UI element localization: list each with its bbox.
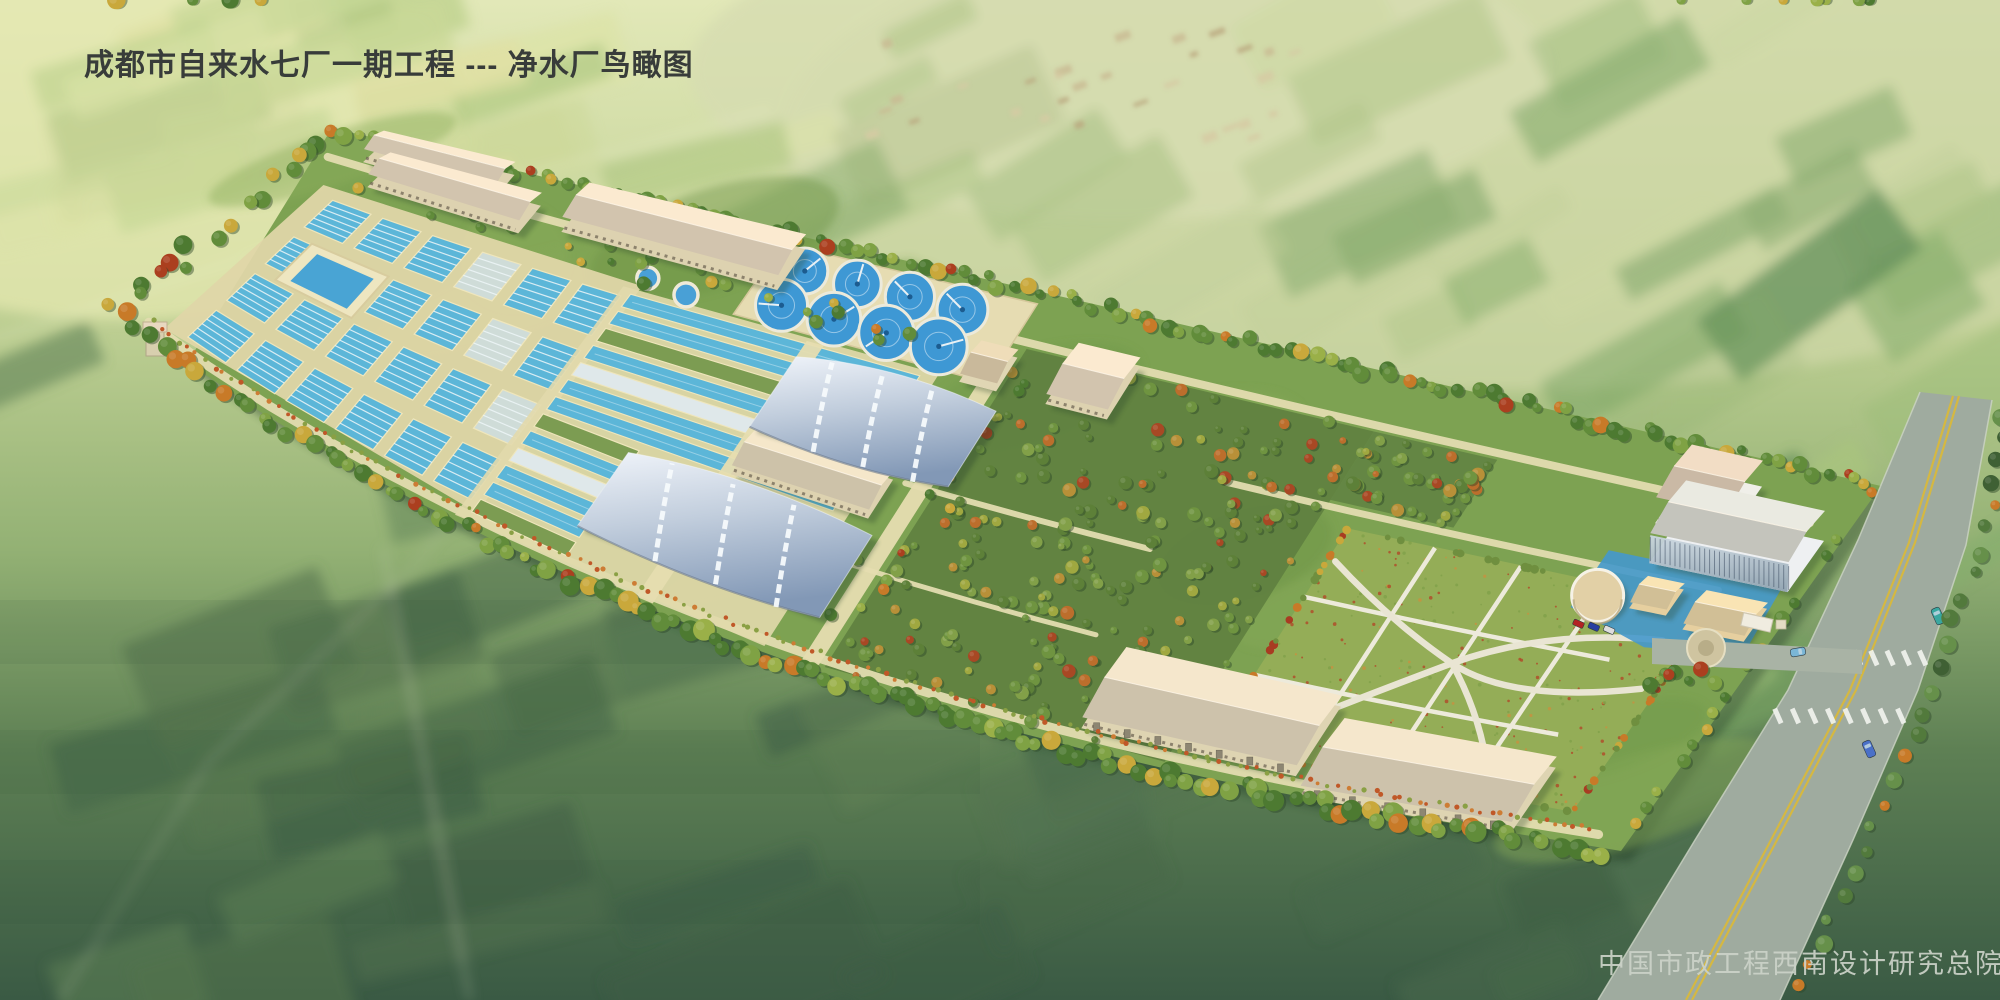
page-title: 成都市自来水七厂一期工程 --- 净水厂鸟瞰图 bbox=[84, 40, 694, 84]
aerial-rendering: 成都市自来水七厂一期工程 --- 净水厂鸟瞰图 中国市政工程西南设计研究总院 bbox=[0, 0, 2000, 1000]
guard-box bbox=[1776, 620, 1786, 629]
rendering-scene bbox=[0, 0, 2000, 1000]
design-institute-credit: 中国市政工程西南设计研究总院 bbox=[1598, 942, 2000, 981]
